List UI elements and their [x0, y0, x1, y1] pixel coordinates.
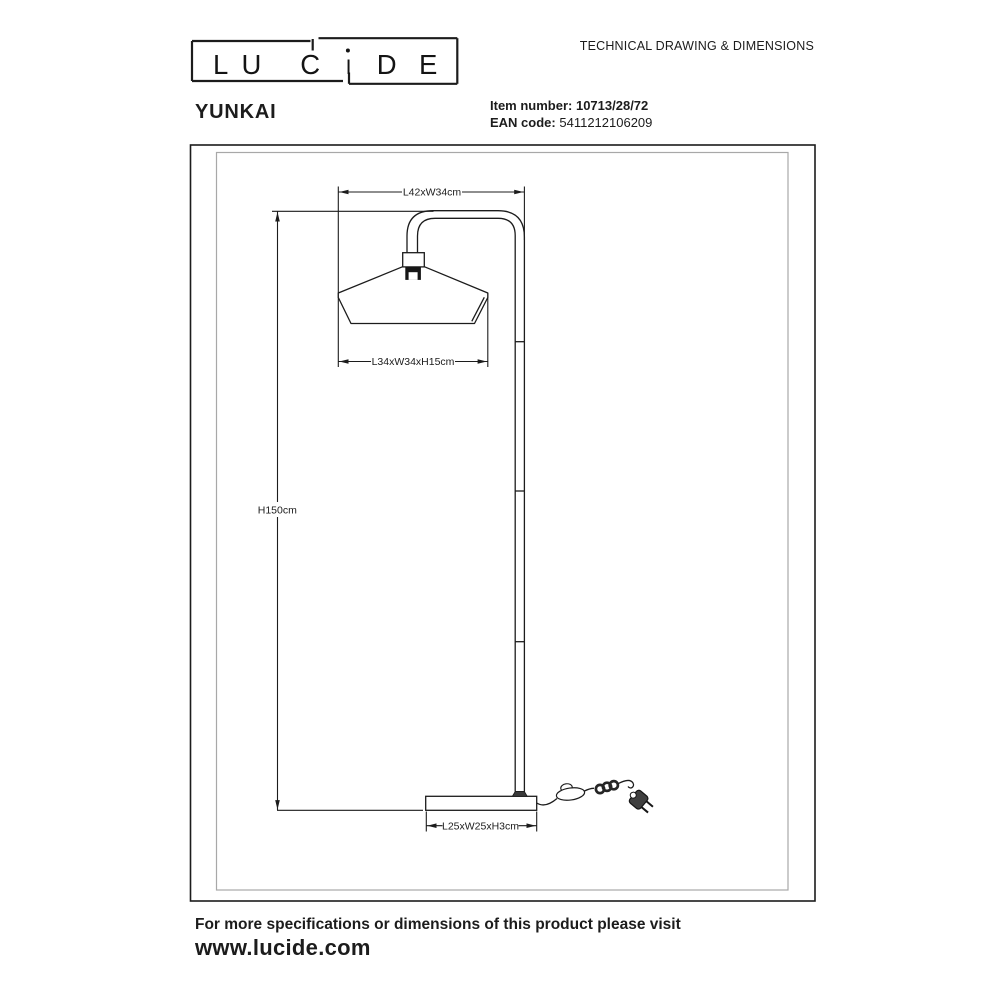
- dimension-base: L25xW25xH3cm: [426, 819, 536, 832]
- dimension-height: H150cm: [255, 211, 300, 810]
- dimension-height-label: H150cm: [258, 504, 297, 516]
- technical-drawing: L42xW34cm H150cm L34xW34xH15cm L25xW25xH…: [0, 0, 1000, 1000]
- dimension-shade-label: L34xW34xH15cm: [372, 356, 455, 368]
- cord-coil: [596, 781, 618, 793]
- dimension-arm-span-label: L42xW34cm: [403, 187, 462, 199]
- spec-sheet-page: L U C I D E TECHNICAL DRAWING & DIMENSIO…: [0, 0, 1000, 1000]
- footer-website: www.lucide.com: [195, 935, 371, 961]
- power-cord-assembly: [537, 781, 656, 816]
- pole-foot-collar: [512, 791, 527, 796]
- drawing-inner-frame: [217, 153, 789, 891]
- power-cord: [585, 788, 595, 791]
- power-cord: [537, 799, 557, 805]
- dimension-arm-span: L42xW34cm: [338, 186, 524, 199]
- lamp-base: [426, 791, 537, 810]
- footer-note: For more specifications or dimensions of…: [195, 916, 681, 934]
- power-plug: [626, 787, 656, 816]
- dimension-shade: L34xW34xH15cm: [338, 355, 488, 368]
- foot-switch: [556, 783, 586, 802]
- power-cord: [618, 781, 634, 788]
- drawing-outer-frame: [191, 145, 816, 901]
- floor-lamp-drawing: [338, 211, 655, 816]
- dimension-base-label: L25xW25xH3cm: [442, 820, 519, 832]
